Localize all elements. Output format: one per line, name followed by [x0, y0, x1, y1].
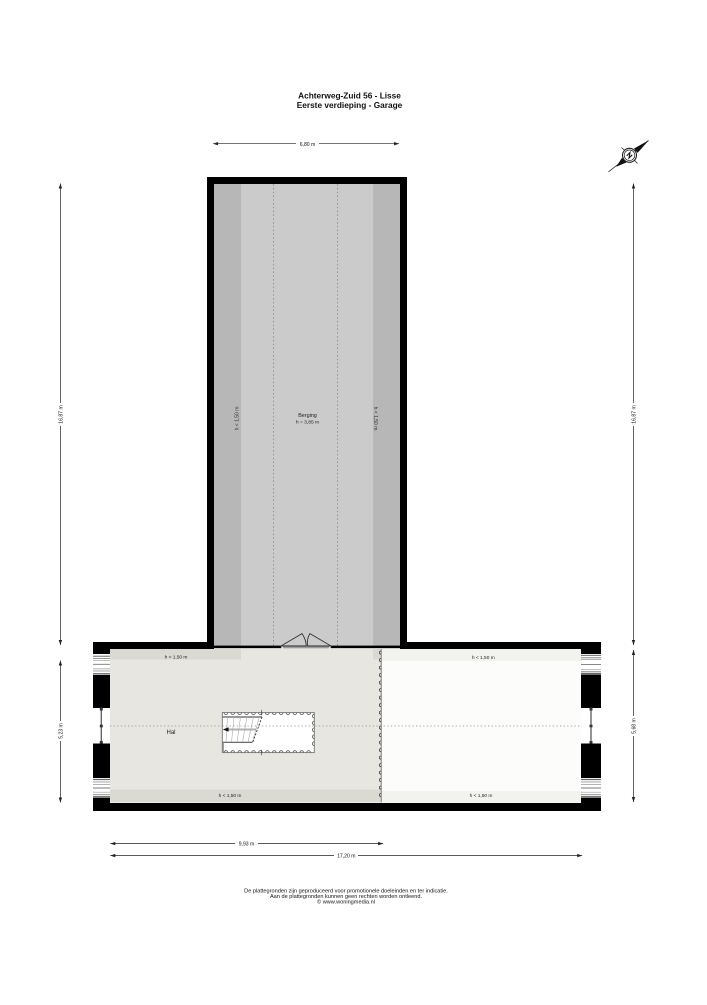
svg-text:6,80 m: 6,80 m — [300, 142, 316, 148]
svg-text:h < 1,50 m: h < 1,50 m — [219, 793, 242, 799]
svg-text:5,68 m: 5,68 m — [632, 718, 638, 734]
svg-text:h < 1,50 m: h < 1,50 m — [165, 655, 188, 661]
svg-text:Berging: Berging — [298, 413, 317, 419]
svg-text:h < 1,50 m: h < 1,50 m — [372, 407, 378, 431]
svg-text:© www.woningmedia.nl: © www.woningmedia.nl — [317, 899, 375, 906]
svg-text:h < 1,50 m: h < 1,50 m — [470, 793, 493, 799]
svg-text:16,87 m: 16,87 m — [59, 405, 65, 423]
svg-text:Achterweg-Zuid 56 - Lisse: Achterweg-Zuid 56 - Lisse — [298, 91, 401, 101]
svg-text:Hal: Hal — [166, 730, 175, 736]
svg-text:h < 1,50 m: h < 1,50 m — [234, 407, 240, 431]
svg-text:5,23 m: 5,23 m — [58, 723, 64, 739]
svg-text:h < 1,50 m: h < 1,50 m — [472, 655, 495, 661]
svg-text:16,87 m: 16,87 m — [632, 405, 638, 423]
svg-text:h = 3,85 m: h = 3,85 m — [296, 420, 319, 426]
svg-text:Eerste verdieping - Garage: Eerste verdieping - Garage — [297, 100, 403, 110]
svg-text:9,93 m: 9,93 m — [239, 842, 255, 848]
svg-text:17,20 m: 17,20 m — [337, 854, 355, 860]
